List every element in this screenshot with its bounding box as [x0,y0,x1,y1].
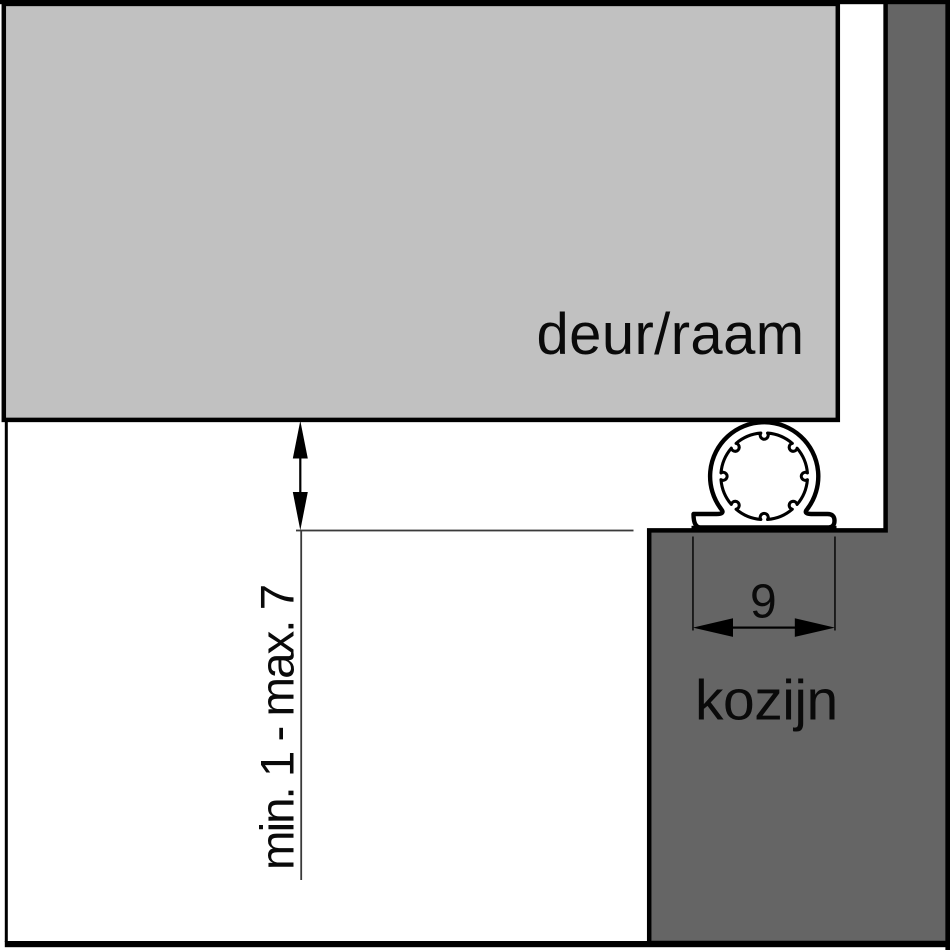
svg-text:kozijn: kozijn [695,669,838,733]
svg-text:min. 1 - max. 7: min. 1 - max. 7 [252,585,305,870]
svg-text:deur/raam: deur/raam [537,302,805,367]
svg-text:9: 9 [750,576,777,629]
